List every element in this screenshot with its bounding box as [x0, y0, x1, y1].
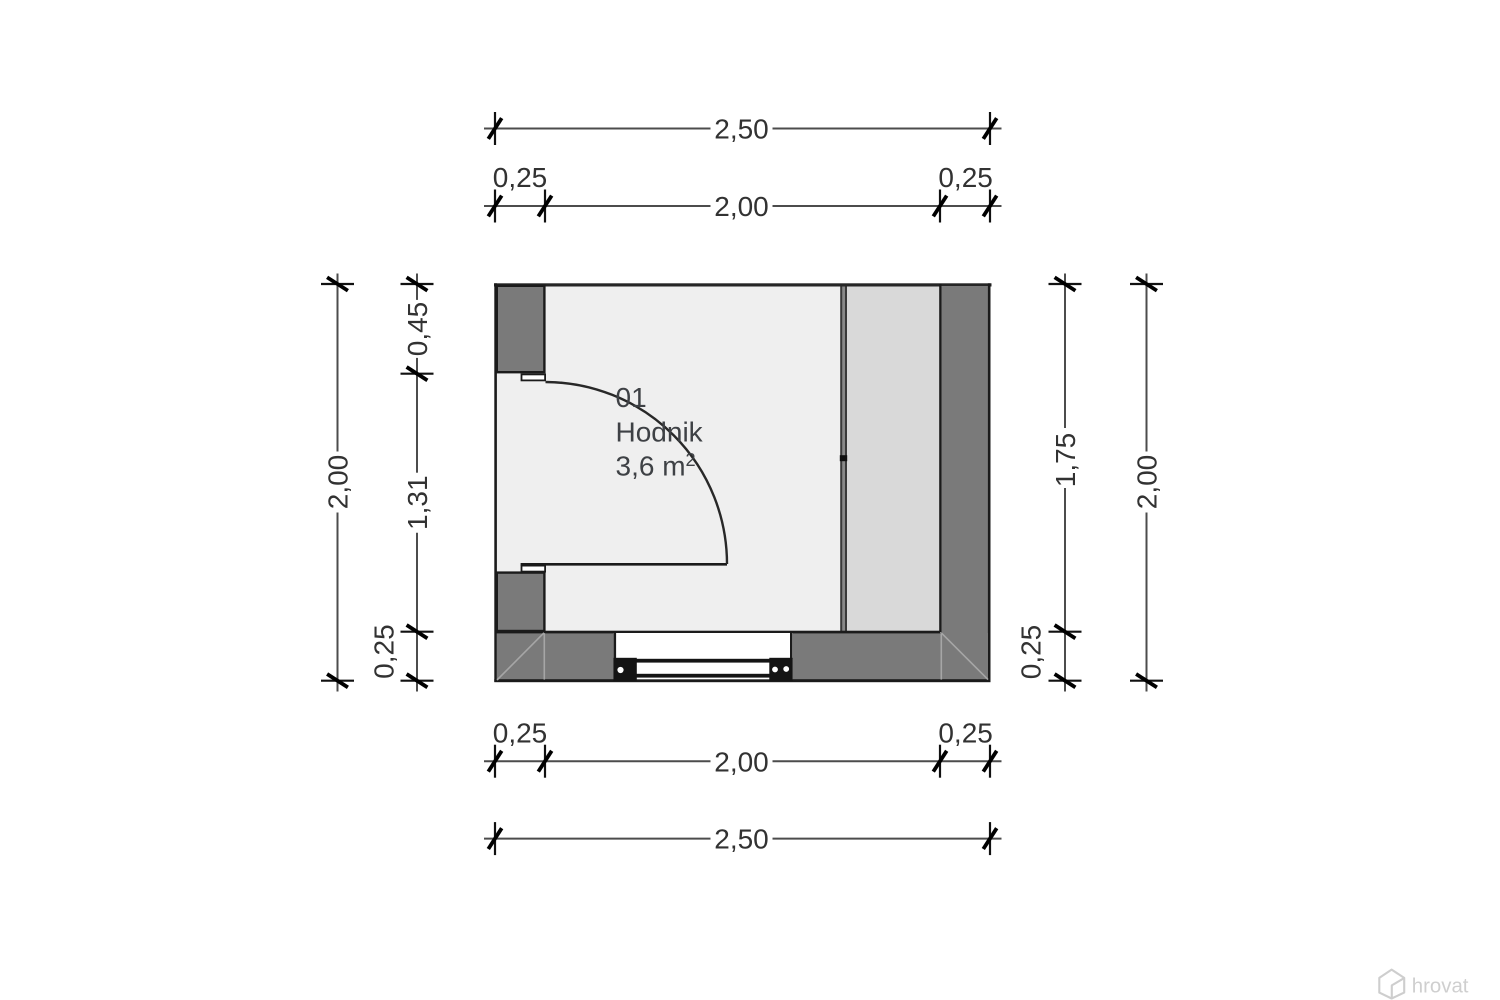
- svg-text:0,25: 0,25: [938, 162, 993, 193]
- svg-text:0,25: 0,25: [369, 624, 400, 679]
- svg-text:hrovat: hrovat: [1412, 975, 1469, 997]
- svg-text:Hodnik: Hodnik: [616, 416, 704, 447]
- svg-text:2,00: 2,00: [1132, 455, 1163, 510]
- svg-text:0,25: 0,25: [493, 718, 548, 749]
- svg-text:0,25: 0,25: [938, 718, 993, 749]
- svg-text:1,75: 1,75: [1050, 433, 1081, 488]
- svg-text:2,00: 2,00: [714, 746, 769, 777]
- svg-text:3,6 m2: 3,6 m2: [616, 450, 696, 482]
- svg-text:2,50: 2,50: [714, 824, 769, 855]
- svg-text:2,00: 2,00: [714, 191, 769, 222]
- svg-text:01: 01: [616, 382, 647, 413]
- svg-text:2,00: 2,00: [323, 455, 354, 510]
- svg-text:2,50: 2,50: [714, 114, 769, 145]
- svg-text:0,45: 0,45: [402, 302, 433, 357]
- svg-text:0,25: 0,25: [493, 162, 548, 193]
- svg-text:0,25: 0,25: [1016, 625, 1047, 680]
- svg-text:1,31: 1,31: [402, 475, 433, 530]
